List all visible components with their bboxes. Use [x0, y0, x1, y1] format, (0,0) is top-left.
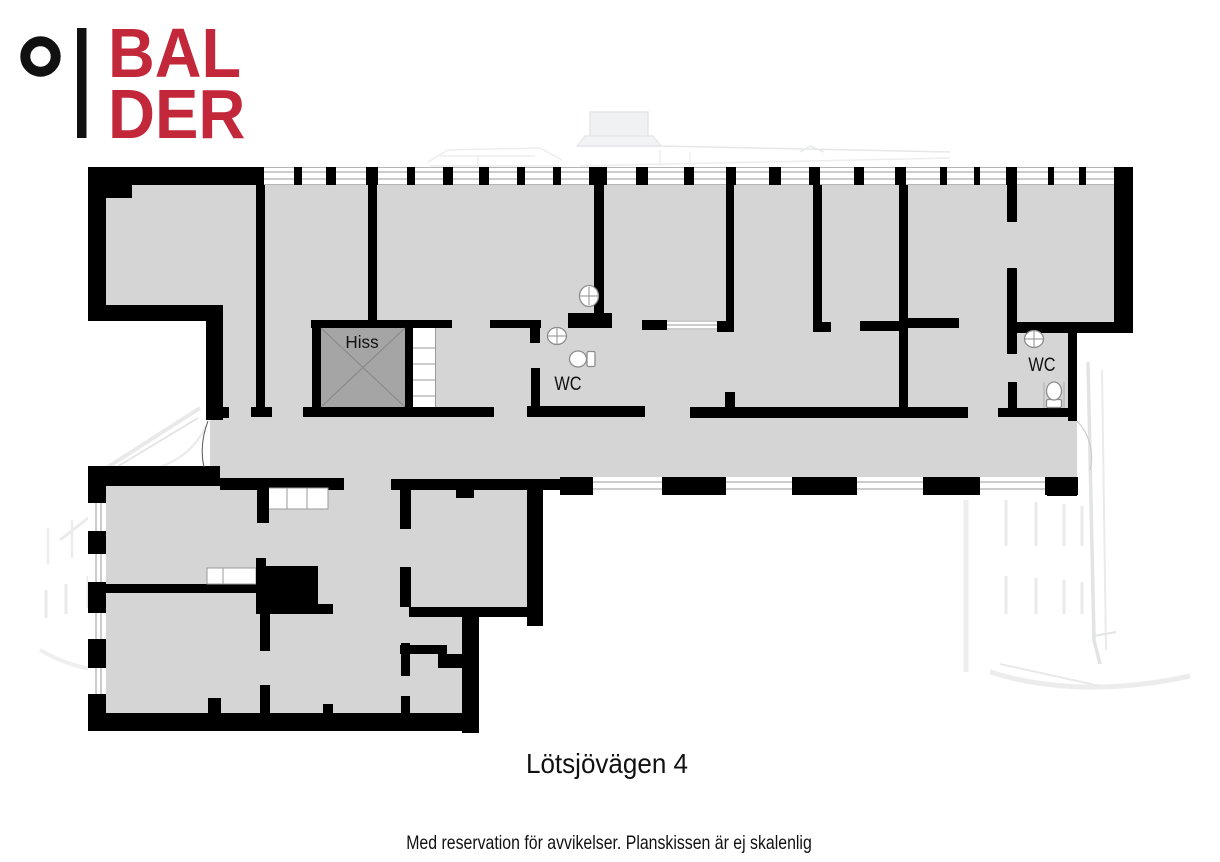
svg-text:WC: WC — [554, 373, 581, 394]
svg-text:DER: DER — [108, 76, 245, 154]
svg-text:Lötsjövägen 4: Lötsjövägen 4 — [526, 748, 688, 779]
svg-text:Med reservation för avvikelser: Med reservation för avvikelser. Planskis… — [406, 832, 812, 854]
svg-text:WC: WC — [1028, 354, 1055, 375]
svg-text:Hiss: Hiss — [345, 332, 378, 353]
